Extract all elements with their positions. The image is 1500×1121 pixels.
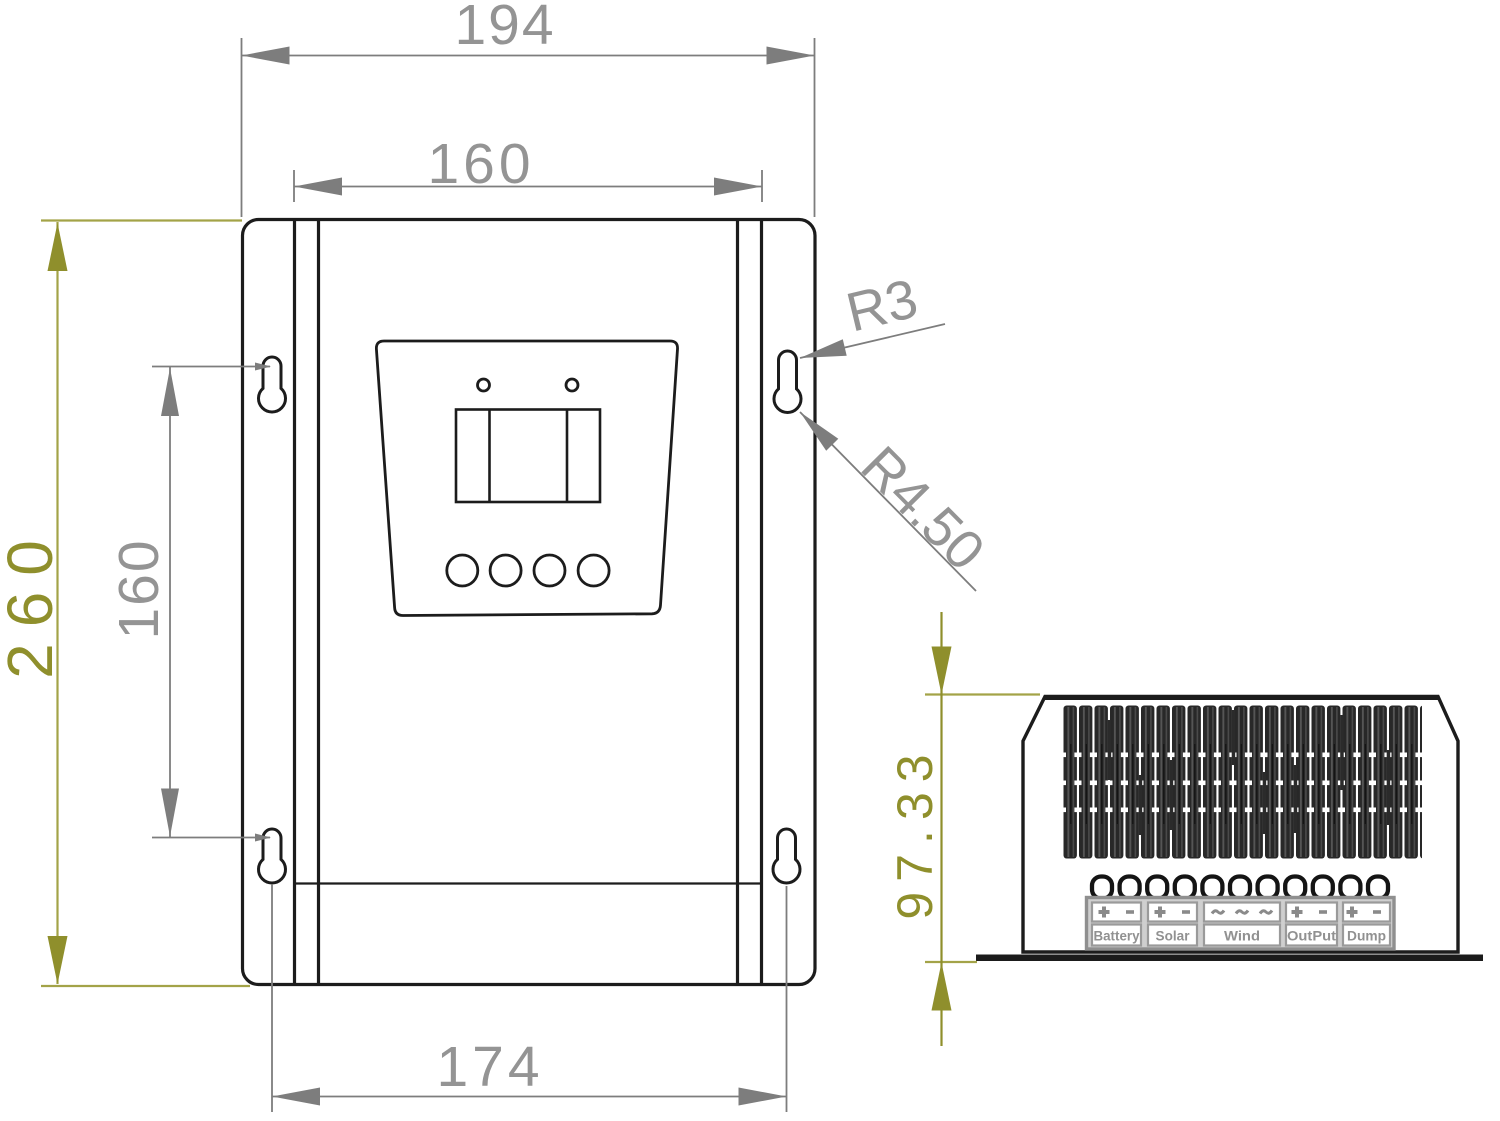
svg-text:194: 194 (454, 0, 555, 57)
svg-text:160: 160 (427, 132, 534, 196)
svg-text:97.33: 97.33 (887, 744, 943, 919)
svg-text:OutPut: OutPut (1287, 928, 1336, 944)
svg-text:174: 174 (436, 1035, 543, 1099)
svg-text:Solar: Solar (1156, 928, 1191, 944)
svg-text:160: 160 (107, 538, 171, 639)
svg-text:Battery: Battery (1094, 928, 1140, 944)
svg-text:Wind: Wind (1224, 928, 1260, 944)
svg-text:Dump: Dump (1347, 928, 1386, 944)
svg-text:260: 260 (0, 524, 66, 679)
